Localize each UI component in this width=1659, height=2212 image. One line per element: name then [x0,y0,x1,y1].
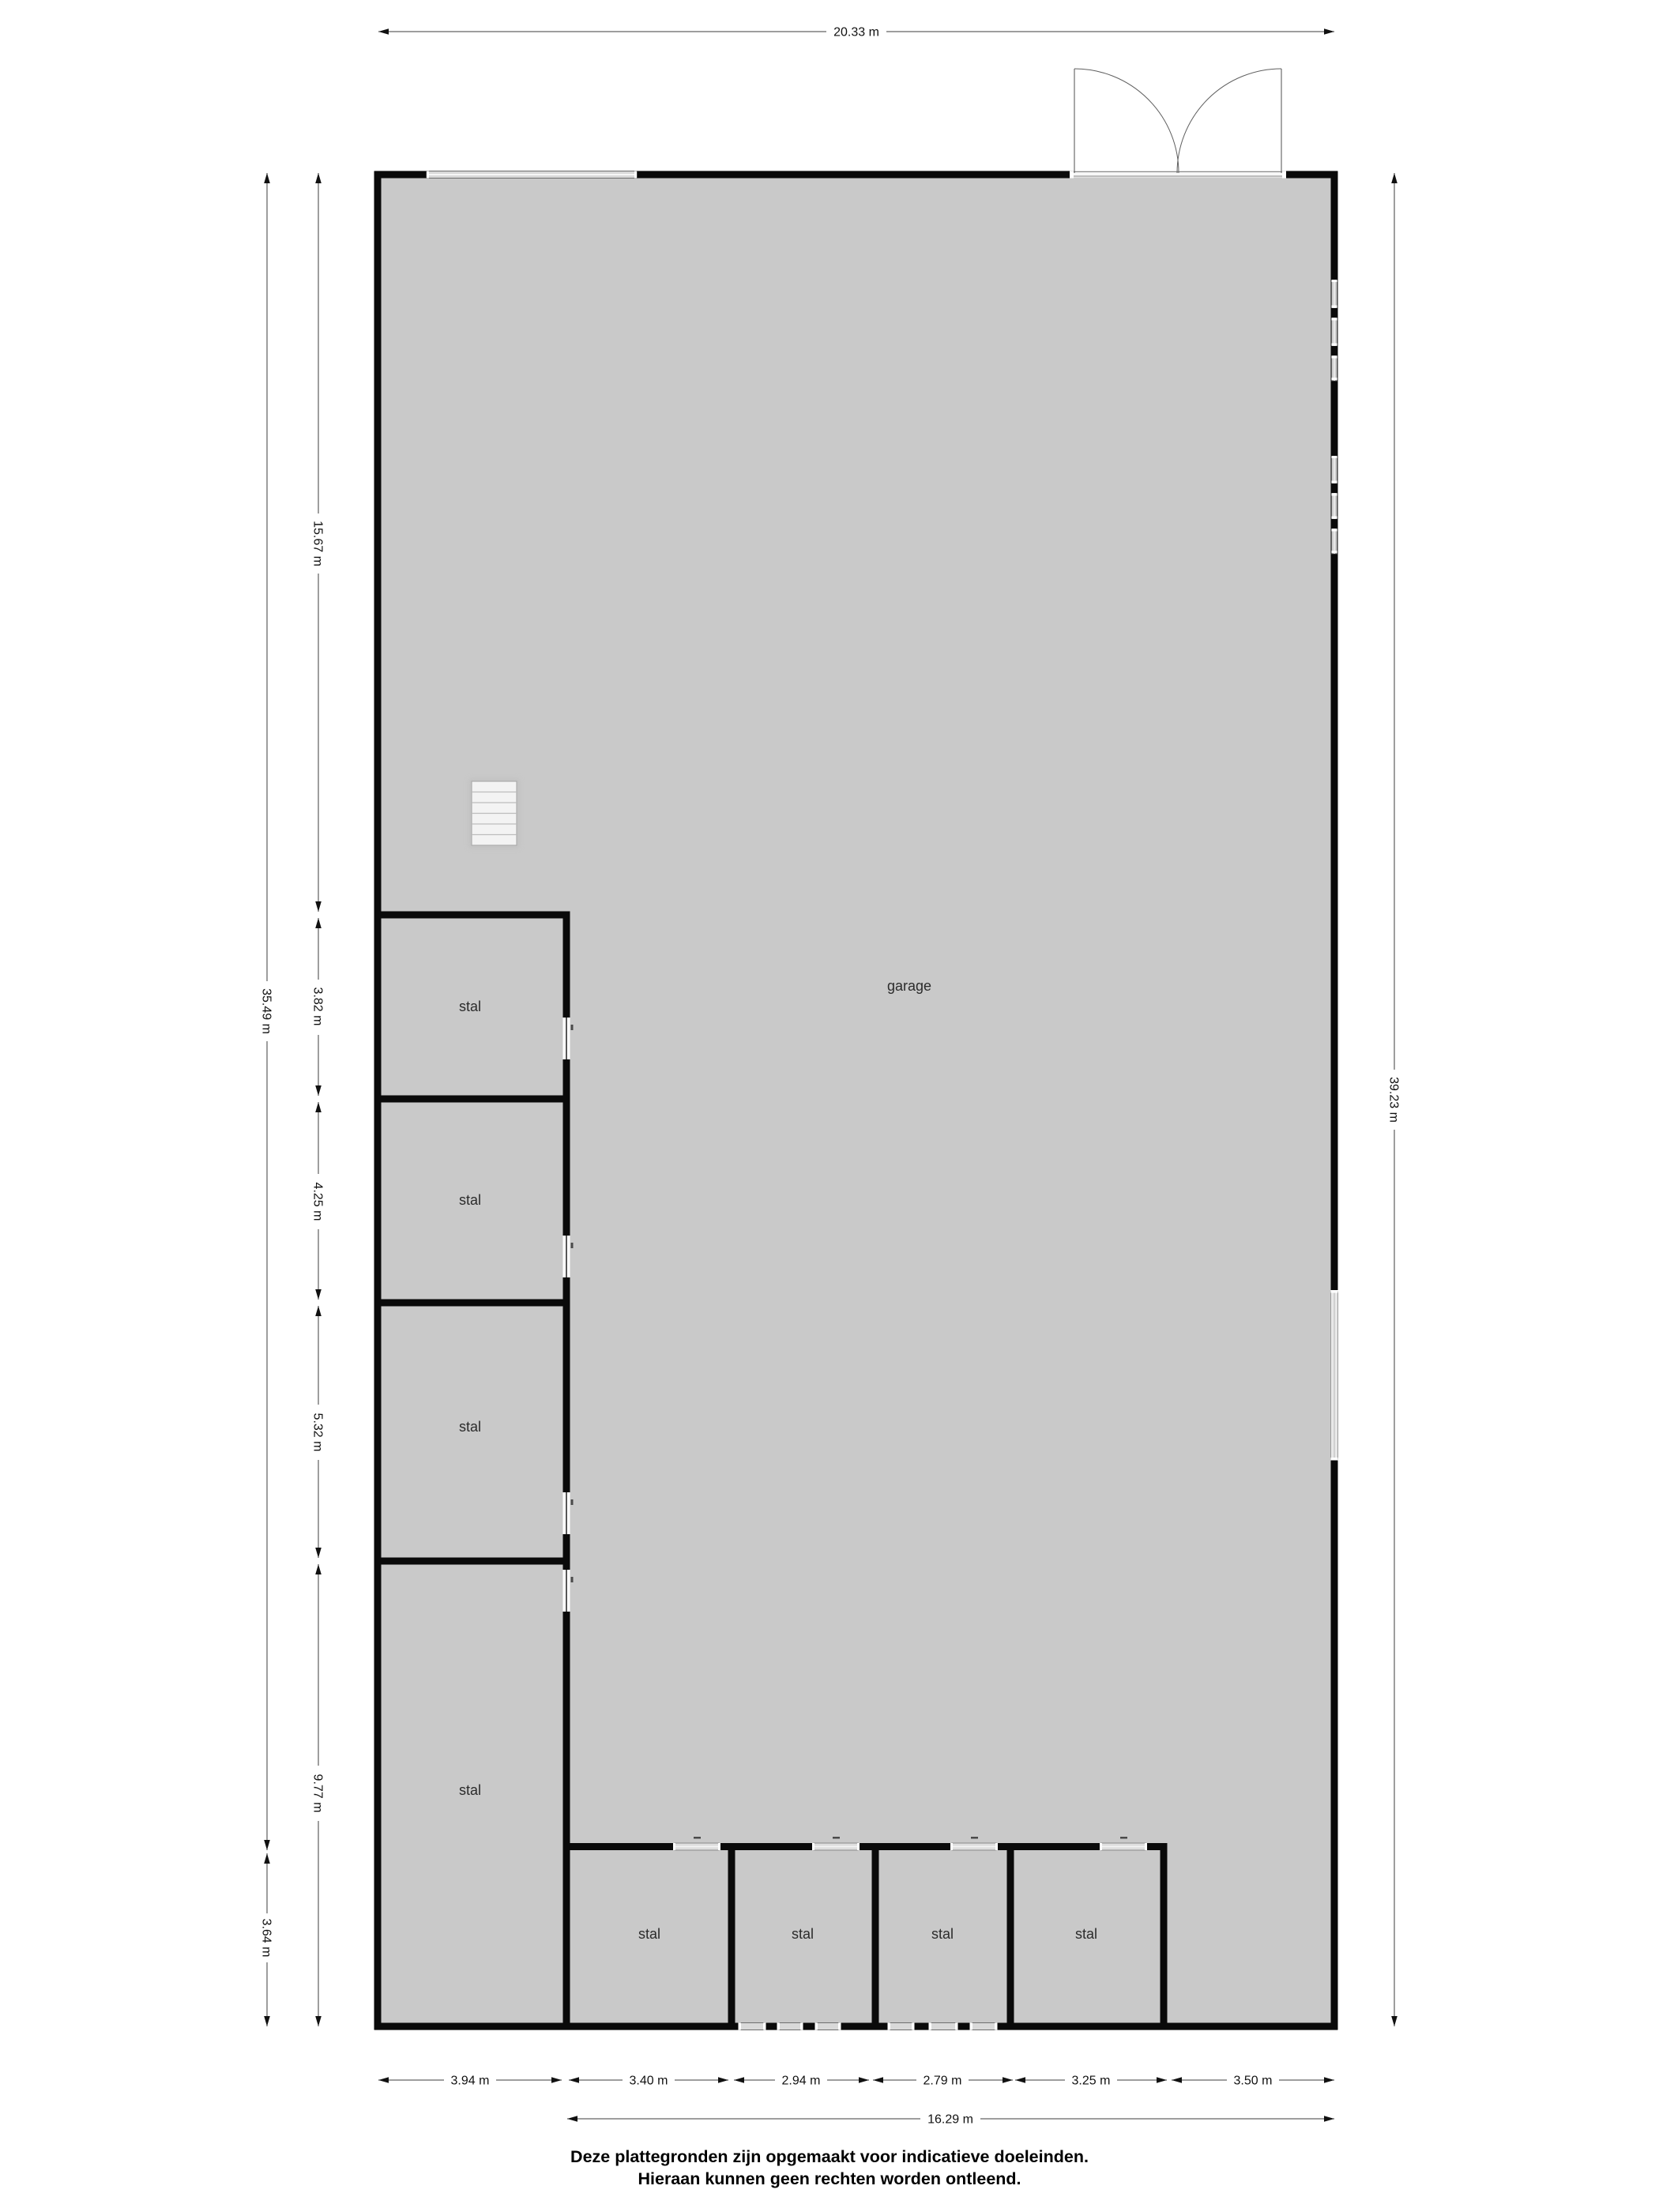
svg-text:16.29 m: 16.29 m [927,2113,973,2127]
svg-text:Deze plattegronden zijn opgema: Deze plattegronden zijn opgemaakt voor i… [570,2147,1089,2166]
svg-text:stal: stal [459,1782,481,1798]
svg-text:15.67 m: 15.67 m [311,521,325,566]
svg-text:stal: stal [459,1192,481,1208]
svg-text:9.77 m: 9.77 m [311,1774,325,1813]
svg-text:3.50 m: 3.50 m [1234,2075,1273,2088]
svg-text:stal: stal [1075,1926,1097,1942]
svg-text:20.33 m: 20.33 m [833,26,879,39]
svg-text:2.94 m: 2.94 m [782,2075,821,2088]
svg-text:3.25 m: 3.25 m [1072,2075,1111,2088]
svg-text:stal: stal [792,1926,814,1942]
svg-text:Hieraan kunnen geen rechten wo: Hieraan kunnen geen rechten worden ontle… [638,2169,1021,2188]
svg-text:stal: stal [931,1926,954,1942]
svg-text:5.32 m: 5.32 m [311,1413,325,1452]
svg-text:3.94 m: 3.94 m [451,2075,490,2088]
svg-text:3.64 m: 3.64 m [260,1919,273,1958]
svg-text:3.40 m: 3.40 m [630,2075,668,2088]
svg-text:35.49 m: 35.49 m [260,988,273,1034]
svg-text:stal: stal [459,1419,481,1435]
svg-text:stal: stal [638,1926,660,1942]
svg-text:stal: stal [459,999,481,1014]
svg-text:2.79 m: 2.79 m [924,2075,962,2088]
svg-text:4.25 m: 4.25 m [311,1183,325,1221]
svg-text:39.23 m: 39.23 m [1387,1077,1401,1123]
svg-text:garage: garage [887,978,931,994]
svg-text:3.82 m: 3.82 m [311,987,325,1026]
